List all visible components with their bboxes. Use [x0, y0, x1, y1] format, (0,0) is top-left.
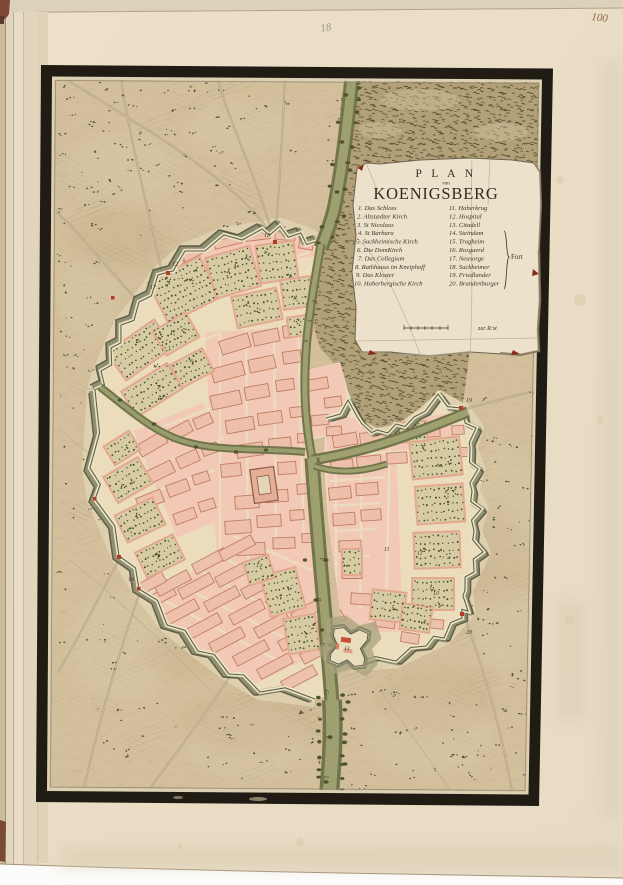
- svg-text:16. Rosgaerd: 16. Rosgaerd: [449, 247, 485, 254]
- svg-text:KOENIGSBERG: KOENIGSBERG: [373, 184, 498, 203]
- svg-text:18: 18: [264, 233, 270, 239]
- svg-text:8. Rathhauss im Kneiphoff: 8. Rathhauss im Kneiphoff: [355, 264, 426, 271]
- svg-text:6. Die DomKirch: 6. Die DomKirch: [357, 247, 403, 254]
- svg-text:11: 11: [417, 551, 423, 557]
- svg-text:12. Hospital: 12. Hospital: [449, 213, 482, 220]
- svg-text:13: 13: [344, 646, 350, 652]
- svg-text:19: 19: [466, 398, 472, 404]
- svg-text:11: 11: [384, 547, 390, 553]
- svg-text:2. Altstædter Kirch: 2. Altstædter Kirch: [357, 213, 408, 220]
- svg-text:3. St Nicolaus: 3. St Nicolaus: [356, 222, 394, 229]
- svg-text:20: 20: [466, 630, 472, 636]
- svg-text:Fort: Fort: [511, 253, 523, 261]
- svg-text:15. Tragheim: 15. Tragheim: [449, 239, 484, 246]
- svg-text:1. Das Schloss: 1. Das Schloss: [358, 205, 397, 212]
- svg-text:7. Das Collegium: 7. Das Collegium: [358, 255, 405, 262]
- svg-text:13. Citadell: 13. Citadell: [449, 222, 480, 229]
- svg-text:17: 17: [150, 285, 157, 291]
- svg-text:12: 12: [172, 262, 178, 268]
- svg-text:18. Sackheimer: 18. Sackheimer: [449, 264, 490, 271]
- svg-text:9. Das Kloster: 9. Das Kloster: [356, 272, 395, 279]
- svg-text:zur R:st: zur R:st: [477, 326, 497, 332]
- svg-text:20. Brandenburger: 20. Brandenburger: [449, 281, 500, 288]
- svg-text:11. Haberkrug: 11. Haberkrug: [449, 205, 488, 212]
- svg-text:17. Neusorge: 17. Neusorge: [449, 255, 484, 262]
- svg-text:5. Sackheimische Kirch: 5. Sackheimische Kirch: [356, 239, 419, 246]
- svg-text:10: 10: [433, 591, 439, 597]
- svg-text:14: 14: [128, 576, 134, 583]
- svg-text:L: L: [322, 774, 330, 780]
- svg-text:10. Haberbergische Kirch: 10. Haberbergische Kirch: [354, 281, 423, 288]
- svg-text:100: 100: [591, 11, 609, 25]
- svg-text:4. St Barbara: 4. St Barbara: [358, 230, 394, 237]
- svg-text:P L A N: P L A N: [415, 168, 476, 180]
- svg-text:19. Friedlander: 19. Friedlander: [449, 272, 491, 279]
- svg-text:14. Steindam: 14. Steindam: [449, 230, 484, 237]
